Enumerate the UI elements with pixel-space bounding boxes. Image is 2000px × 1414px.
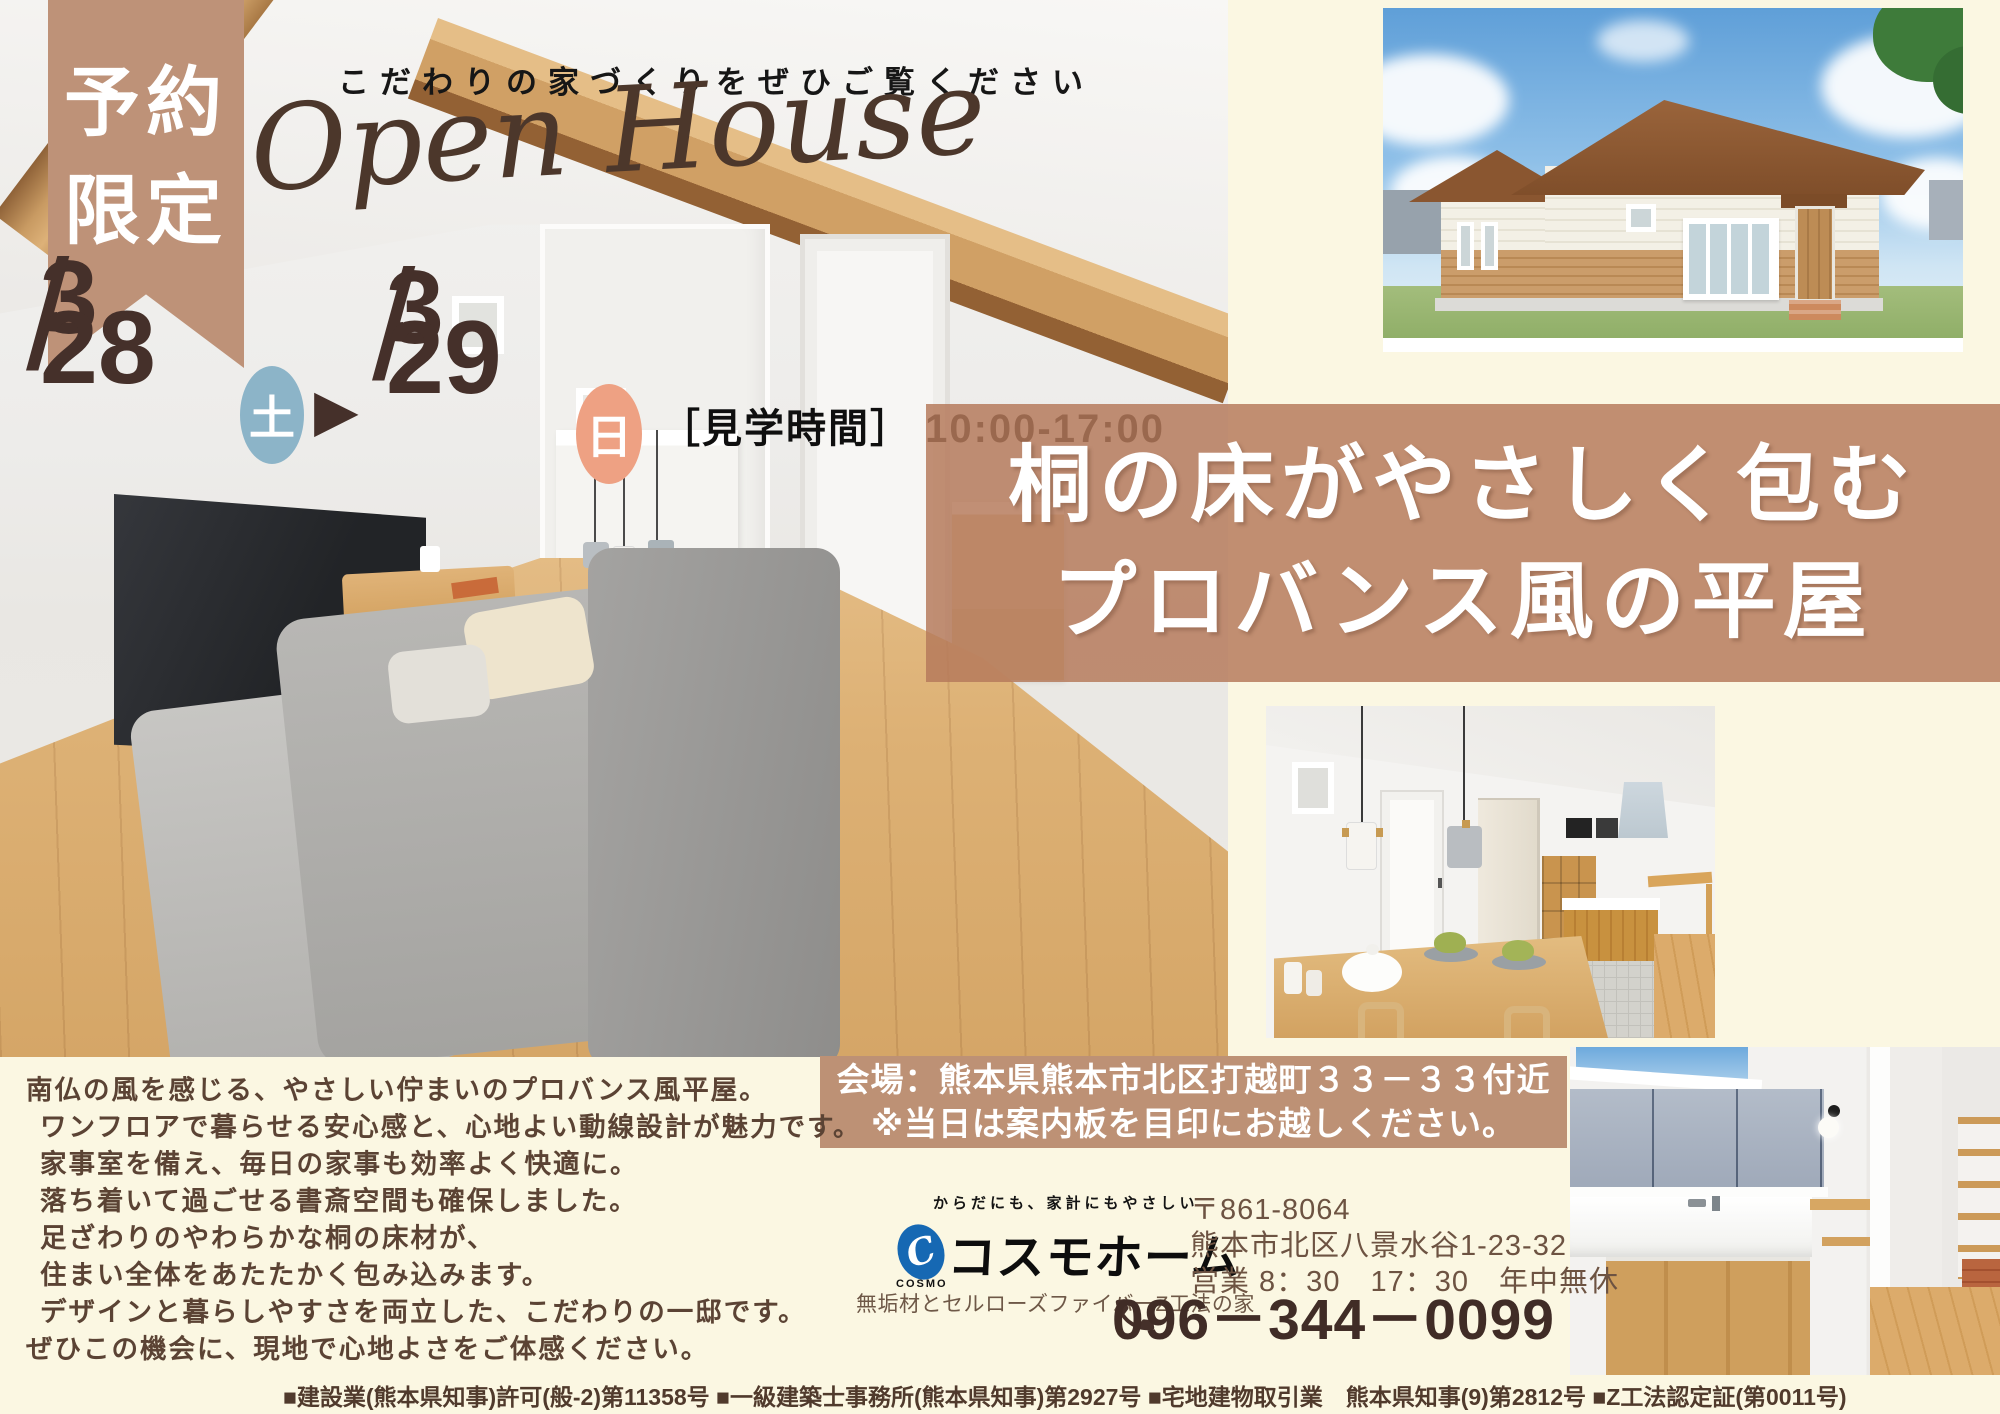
door-frame	[1870, 1047, 1890, 1309]
description-line: 家事室を備え、毎日の家事も効率よく快適に。	[26, 1146, 906, 1183]
phone-number: 096－344－0099	[1112, 1274, 1555, 1356]
window	[1683, 218, 1779, 300]
phone-row: 096－344－0099	[1112, 1292, 1158, 1338]
ribbon-label-line1: 予約	[48, 50, 244, 158]
sofa-section	[588, 548, 840, 1057]
lamp-detail	[1462, 820, 1470, 828]
main-title-line2: プロバンス風の平屋	[1052, 545, 1874, 657]
description-line: 足ざわりのやわらかな桐の床材が、	[26, 1220, 906, 1257]
description-block: 南仏の風を感じる、やさしい佇まいのプロバンス風平屋。 ワンフロアで暮らせる安心感…	[26, 1072, 906, 1368]
faucet	[1688, 1199, 1706, 1207]
cushion	[387, 643, 492, 725]
pot-lid-knob	[1366, 944, 1379, 955]
kitchen-photo	[1266, 706, 1715, 1038]
mirror-ledge	[1570, 1187, 1828, 1197]
weekday-saturday-badge: 土	[240, 366, 304, 464]
bowl	[1434, 932, 1466, 953]
logo-letter: C	[901, 1228, 941, 1277]
pendant-cord	[1361, 706, 1363, 824]
range-hood	[1618, 782, 1668, 838]
window	[1481, 222, 1498, 270]
appliance	[1566, 818, 1592, 838]
cloud	[1597, 20, 1689, 62]
wall-lamp-globe	[1818, 1117, 1839, 1138]
window	[1626, 204, 1656, 232]
slat-shelf	[1958, 1117, 2000, 1279]
jar	[1306, 970, 1322, 996]
open-house-flyer: 予約 限定 こだわりの家づくりをぜひご覧ください Open House 3 / …	[0, 0, 2000, 1414]
entrance-steps	[1789, 300, 1841, 320]
day: 29	[386, 306, 502, 410]
license-line: ■建設業(熊本県知事)許可(般-2)第11358号 ■一級建築士事務所(熊本県知…	[283, 1378, 1847, 1412]
casserole-pot	[1342, 952, 1402, 992]
house-exterior-photo	[1383, 8, 1963, 352]
window	[1457, 222, 1474, 270]
description-line: デザインと暮らしやすさを両立した、こだわりの一邸です。	[26, 1294, 906, 1331]
appliance	[1596, 818, 1618, 838]
dining-chair	[1358, 1002, 1404, 1038]
bar-counter	[1648, 872, 1713, 887]
hallway-wall	[1890, 1047, 1942, 1289]
washroom-photo	[1570, 1047, 2000, 1375]
distant-house	[1929, 180, 1963, 240]
pendant-lamp	[1447, 826, 1482, 868]
venue-band: 会場：熊本県熊本市北区打越町３３－３３付近 ※当日は案内板を目印にお越しください…	[820, 1056, 1567, 1148]
day: 28	[40, 296, 156, 400]
venue-address: 会場：熊本県熊本市北区打越町３３－３３付近	[837, 1058, 1551, 1102]
description-line: 南仏の風を感じる、やさしい佇まいのプロバンス風平屋。	[26, 1072, 906, 1109]
pendant-cord	[1463, 706, 1465, 828]
dining-chair	[1504, 1006, 1550, 1038]
image-margin	[1383, 338, 1963, 352]
lamp-detail	[1342, 828, 1349, 837]
bowl	[1502, 940, 1534, 961]
lamp-detail	[1376, 828, 1383, 837]
venue-note: ※当日は案内板を目印にお越しください。	[871, 1102, 1516, 1146]
pendant-lamp	[1346, 822, 1377, 870]
jar	[1284, 962, 1302, 994]
company-tagline: からだにも、家計にもやさしい	[933, 1192, 1199, 1213]
vanity-cabinet	[1606, 1257, 1810, 1375]
window	[1292, 762, 1334, 814]
description-line: 落ち着いて過ごせる書斎空間も確保しました。	[26, 1183, 906, 1220]
counter-top	[1562, 898, 1660, 910]
wall-lamp	[1828, 1105, 1840, 1117]
main-title-band: 桐の床がやさしく包む プロバンス風の平屋	[926, 404, 2000, 682]
wood-floor	[1654, 934, 1715, 1038]
weekday-sunday-badge: 日	[576, 384, 642, 484]
faucet	[1712, 1196, 1720, 1211]
main-title-line1: 桐の床がやさしく包む	[1008, 429, 1918, 541]
mirror-cabinet	[1570, 1089, 1824, 1189]
description-line: 住まい全体をあたたかく包み込みます。	[26, 1257, 906, 1294]
description-line: ぜひこの機会に、現地で心地よさをご体感ください。	[26, 1331, 906, 1368]
entrance-door	[1795, 206, 1835, 302]
pendant-cord	[656, 430, 658, 542]
wood-floor	[1870, 1287, 2000, 1375]
date-range-arrow-icon: ▶	[314, 376, 359, 444]
door-handle	[1438, 878, 1442, 888]
mug	[420, 546, 440, 572]
description-line: ワンフロアで暮らせる安心感と、心地よい動線設計が魅力です。	[26, 1109, 906, 1146]
cloud	[1383, 54, 1509, 146]
